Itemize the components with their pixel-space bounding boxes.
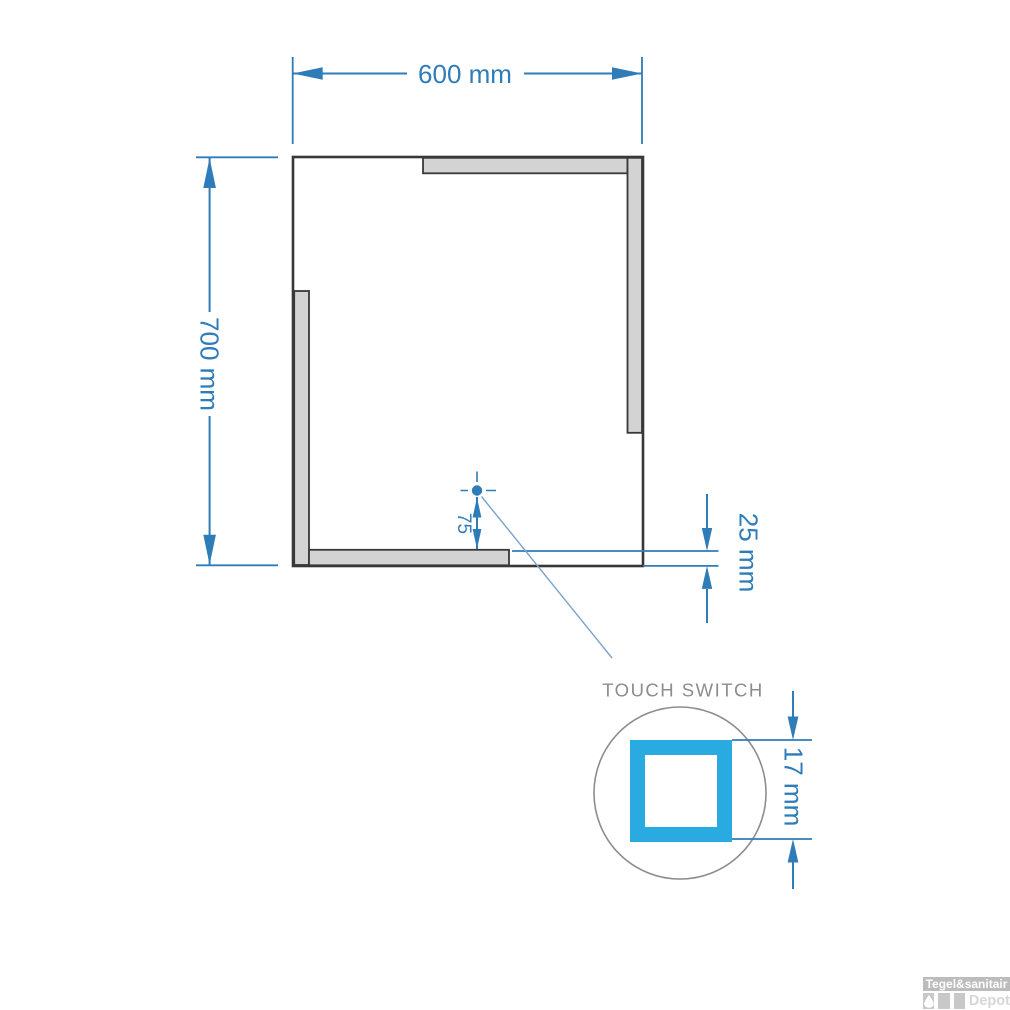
- arrow-right-icon: [612, 67, 642, 80]
- depot-label: Depot: [969, 993, 1010, 1009]
- arrow-down-icon: [702, 528, 712, 551]
- mirror-technical-drawing: 600 mm 700 mm 75 25 mm TOUCH SWITCH: [0, 0, 1010, 1010]
- droplet-square: [923, 993, 934, 1009]
- droplet-icon: [924, 995, 934, 1008]
- led-strip-left: [294, 291, 309, 565]
- led-strip-bottom: [309, 550, 509, 566]
- watermark-logo: Tegel&sanitair Depot: [923, 977, 1010, 1009]
- touch-switch-point: [472, 485, 482, 495]
- dimension-height: 700 mm: [195, 157, 278, 565]
- detail-title: TOUCH SWITCH: [602, 680, 764, 701]
- arrow-left-icon: [293, 67, 323, 80]
- dimension-strip-label: 25 mm: [734, 513, 764, 592]
- touch-switch-detail: TOUCH SWITCH: [594, 680, 766, 880]
- led-strip-right: [628, 158, 643, 433]
- led-strip-top: [423, 158, 628, 174]
- dimension-height-label: 700 mm: [195, 317, 225, 411]
- logo-square: [938, 993, 949, 1009]
- arrow-up-icon: [702, 566, 712, 589]
- dimension-width-label: 600 mm: [418, 59, 512, 89]
- arrow-down-icon: [203, 535, 216, 565]
- mirror-outline: [293, 157, 643, 566]
- arrow-down-icon: [788, 717, 799, 741]
- dimension-width: 600 mm: [293, 57, 642, 144]
- arrow-up-icon: [203, 158, 216, 188]
- brand-banner: Tegel&sanitair: [923, 977, 1010, 991]
- dimension-switch-offset-label: 75: [453, 513, 474, 534]
- logo-square: [954, 993, 965, 1009]
- arrow-up-icon: [788, 839, 799, 863]
- dimension-switch-size-label: 17 mm: [779, 747, 809, 826]
- touch-switch-square-inner: [645, 755, 717, 827]
- brand-squares: Depot: [923, 993, 1010, 1009]
